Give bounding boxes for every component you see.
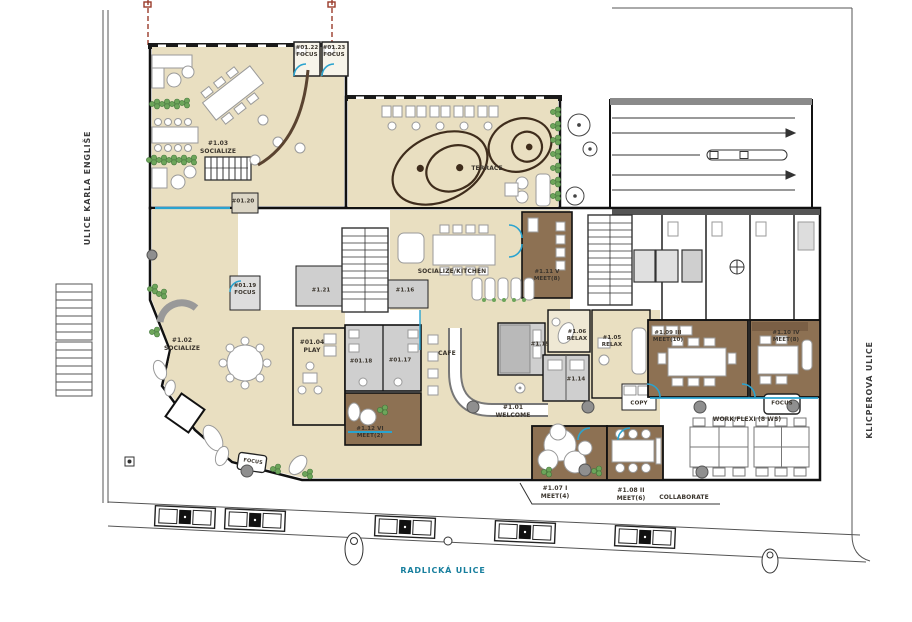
label-room-0120: #01.20: [232, 198, 255, 205]
label-meet-0110: #1.10 IVMEET(8): [772, 330, 799, 344]
label-focus-0123: #01.23FOCUS: [323, 45, 346, 59]
courtyard-trees: [566, 114, 597, 205]
label-room-0117: #01.17: [389, 357, 412, 364]
label-welcome-0101: #1.01WELCOME: [496, 404, 531, 420]
street-label-right: KLICPEROVA ULICE: [865, 341, 875, 439]
label-relax-0106: #1.06RELAX: [567, 329, 588, 343]
label-room-0121: #1.21: [312, 287, 331, 294]
label-meet-0111: #1.11 VMEET(8): [534, 269, 560, 283]
label-terrace: TERRACE: [471, 165, 502, 173]
floor-plan: #01.22FOCUS #01.23FOCUS #1.03SOCIALIZE T…: [0, 0, 912, 622]
parked-cars: [155, 506, 676, 549]
label-cafe: CAFE: [438, 350, 456, 358]
label-room-0118: #01.18: [350, 358, 373, 365]
label-kitchen: SOCIALIZE/KITCHEN: [418, 268, 487, 276]
label-focus-0122: #01.22FOCUS: [296, 45, 319, 59]
label-meet-0107: #1.07 IMEET(4): [541, 485, 570, 501]
label-focus-work: FOCUS: [771, 400, 792, 407]
label-meet-0112: #1.12 VIMEET(2): [356, 426, 383, 440]
label-socialize-0103: #1.03SOCIALIZE: [200, 140, 236, 156]
label-collaborate: COLLABORATE: [659, 494, 709, 502]
label-socialize-0102: #1.02SOCIALIZE: [164, 337, 200, 353]
label-relax-0105: #1.05RELAX: [602, 335, 623, 349]
label-play-0104: #01.04PLAY: [300, 339, 325, 355]
label-room-0116: #1.16: [396, 287, 415, 294]
street-parking-left: [56, 284, 92, 396]
floor-plan-canvas: [0, 0, 912, 622]
label-copy: COPY: [630, 400, 647, 407]
room-0121: [296, 266, 344, 306]
label-room-0115: #1.15: [531, 341, 550, 348]
street-label-bottom: RADLICKÁ ULICE: [400, 566, 485, 576]
label-meet-0108: #1.08 IIMEET(6): [617, 487, 646, 503]
label-meet-0109: #1.09 IIIMEET(10): [653, 330, 683, 344]
stair-socialize: [205, 157, 251, 180]
label-room-0114: #1.14: [567, 376, 586, 383]
label-work-flexi: WORK/FLEXI (8 WS): [713, 416, 782, 424]
label-focus-0119: #01.19FOCUS: [234, 283, 257, 297]
street-label-left: ULICE KARLA ENGLIŠE: [83, 131, 93, 246]
survey-lines: [144, 0, 335, 45]
